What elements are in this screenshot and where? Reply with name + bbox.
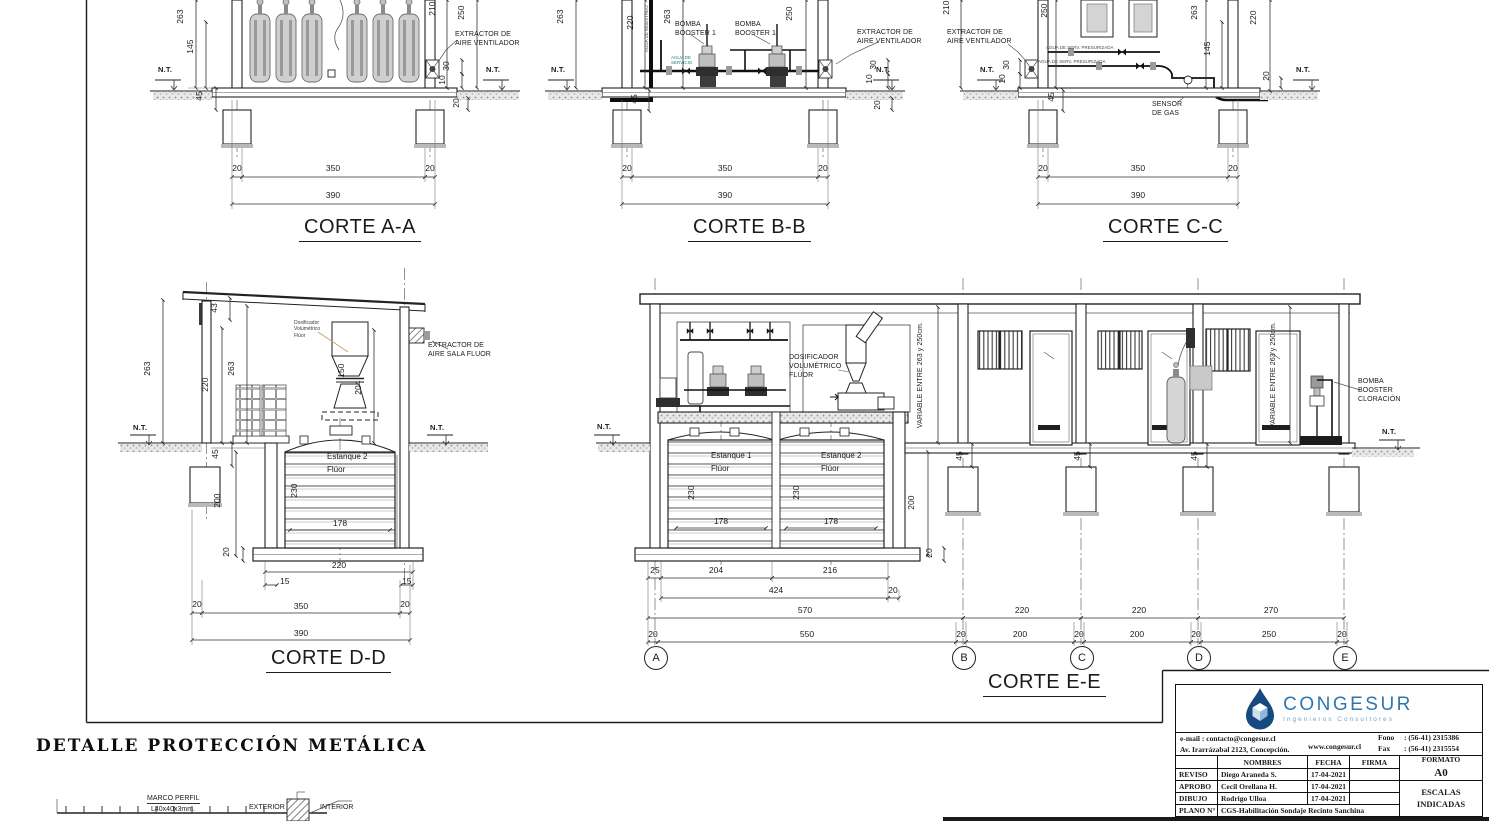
company-logo: CONGESUR Ingenieros Consultores xyxy=(1176,685,1482,732)
dimension-label: 200 xyxy=(1130,630,1144,640)
sheet-edge xyxy=(943,817,1489,821)
dimension-label: 424 xyxy=(769,586,783,596)
dimension-label: 20 xyxy=(925,548,935,557)
grid-bubble-c: C xyxy=(1070,646,1094,670)
col-firma: FIRMA xyxy=(1350,756,1400,769)
nt-label: N.T. xyxy=(1296,66,1310,75)
extractor-aire-label: EXTRACTOR DE AIRE VENTILADOR xyxy=(857,28,922,46)
nt-label: N.T. xyxy=(876,66,890,75)
dimension-label: 45 xyxy=(1073,451,1083,460)
dimension-label: 230 xyxy=(687,486,697,500)
plano-value: CGS-Habilitación Sondaje Recinto Sanchin… xyxy=(1218,805,1400,816)
dimension-label: 45 xyxy=(195,91,205,100)
nt-label: N.T. xyxy=(980,66,994,75)
dimension-label: 220 xyxy=(332,561,346,571)
marco-perfil-label: MARCO PERFIL xyxy=(147,795,200,804)
company-subtitle: Ingenieros Consultores xyxy=(1283,716,1413,723)
nt-label: N.T. xyxy=(158,66,172,75)
corte-cc-title: CORTE C-C xyxy=(1103,216,1228,242)
dimension-label: 150 xyxy=(337,364,347,378)
nt-label: N.T. xyxy=(551,66,565,75)
dimension-label: 550 xyxy=(800,630,814,640)
fax-label: Fax xyxy=(1378,744,1404,755)
dimension-label: 10 xyxy=(438,75,448,84)
table-corner-cell xyxy=(1176,756,1218,769)
nt-label: N.T. xyxy=(430,424,444,433)
extractor-aire-label: EXTRACTOR DE AIRE VENTILADOR xyxy=(455,30,520,48)
dimension-label: 178 xyxy=(824,517,838,527)
company-website: www.congesur.cl xyxy=(1308,741,1378,754)
col-fecha: FECHA xyxy=(1308,756,1350,769)
dosificador-label: DOSIFICADOR VOLUMÉTRICO FLÚOR xyxy=(789,353,841,380)
dimension-label: 20 xyxy=(192,600,201,610)
grid-bubble-a: A xyxy=(644,646,668,670)
dimension-label: 390 xyxy=(1131,191,1145,201)
dimension-label: 25 xyxy=(650,566,659,576)
dimension-label: 10 xyxy=(865,74,875,83)
dimension-label: 20 xyxy=(1262,71,1272,80)
dimension-label: 20 xyxy=(232,164,241,174)
nt-label: N.T. xyxy=(133,424,147,433)
dimension-label: 350 xyxy=(1131,164,1145,174)
row-date: 17-04-2021 xyxy=(1308,769,1350,781)
dimension-label: 30 xyxy=(1002,60,1012,69)
dimension-label: 20 xyxy=(648,630,657,640)
interior-label: INTERIOR xyxy=(320,804,353,811)
drawing-sheet: 263145210250301020452035020390N.T.N.T.EX… xyxy=(0,0,1489,821)
dimension-label: 230 xyxy=(792,486,802,500)
nt-label: N.T. xyxy=(1382,428,1396,437)
dimension-label: 20 xyxy=(956,630,965,640)
dimension-label: 210 xyxy=(428,2,438,16)
estanque-label: Estanque 2 xyxy=(327,452,367,461)
sensor-gas-label: SENSOR DE GAS xyxy=(1152,100,1182,118)
dimension-label: 30 xyxy=(442,61,452,70)
dimension-label: 210 xyxy=(942,1,952,15)
grid-bubble-d: D xyxy=(1187,646,1211,670)
dimension-label: 45 xyxy=(955,451,965,460)
signature-table: NOMBRES FECHA FIRMA FORMATO A0 REVISO Di… xyxy=(1176,755,1482,816)
escalas-value: ESCALAS INDICADAS xyxy=(1417,787,1465,809)
dosificador-label: Dosificador Volumétrico Flúor xyxy=(294,320,320,339)
dimension-label: 20 xyxy=(818,164,827,174)
dimension-label: 220 xyxy=(1015,606,1029,616)
dimension-label: 250 xyxy=(1040,4,1050,18)
marco-perfil-spec: L40x40x3mm. xyxy=(151,806,195,813)
corte-dd-title: CORTE D-D xyxy=(266,647,391,673)
corte-aa-title: CORTE A-A xyxy=(299,216,421,242)
dimension-label: 204 xyxy=(354,381,364,395)
dimension-label: 145 xyxy=(1203,42,1213,56)
agua-servicio-label: AGUA DE SERVICIO xyxy=(671,55,692,65)
detalle-drawing xyxy=(57,792,352,821)
dimension-label: 10 xyxy=(998,74,1008,83)
dimension-label: 390 xyxy=(326,191,340,201)
dimension-label: 350 xyxy=(326,164,340,174)
dimension-label: 45 xyxy=(1190,451,1200,460)
estanque-label: Estanque 2 xyxy=(821,451,861,460)
dimension-label: 250 xyxy=(1262,630,1276,640)
company-email: e-mail : contacto@congesur.cl xyxy=(1180,733,1308,744)
escalas-cell: ESCALAS INDICADAS xyxy=(1400,781,1482,816)
dimension-label: 270 xyxy=(1264,606,1278,616)
nt-label: N.T. xyxy=(486,66,500,75)
dimension-label: 250 xyxy=(457,6,467,20)
title-block: CONGESUR Ingenieros Consultores e-mail :… xyxy=(1175,684,1483,817)
dimension-label: 20 xyxy=(1074,630,1083,640)
dimension-label: 220 xyxy=(1249,11,1259,25)
estanque-label: Estanque 1 xyxy=(711,451,751,460)
dimension-label: 390 xyxy=(294,629,308,639)
dimension-label: 200 xyxy=(907,496,917,510)
bomba-booster-label: BOMBA BOOSTER 1 xyxy=(735,20,776,38)
dimension-label: 350 xyxy=(294,602,308,612)
dimension-label: 250 xyxy=(785,7,795,21)
dimension-label: 20 xyxy=(400,600,409,610)
dimension-label: 263 xyxy=(663,10,673,24)
extractor-aire-label: EXTRACTOR DE AIRE VENTILADOR xyxy=(947,28,1012,46)
company-address: Av. Irarrázabal 2123, Concepción. xyxy=(1180,744,1308,755)
dimension-label: 15 xyxy=(280,577,289,587)
dimension-label: 220 xyxy=(201,378,211,392)
dimension-label: 216 xyxy=(823,566,837,576)
dimension-label: 570 xyxy=(798,606,812,616)
fono-value: : (56-41) 2315386 xyxy=(1404,733,1478,744)
corte-ee-drawing xyxy=(594,278,1420,646)
dimension-label: 20 xyxy=(222,547,232,556)
dimension-label: 263 xyxy=(143,362,153,376)
dimension-label: 45 xyxy=(1047,92,1057,101)
dimension-label: 20 xyxy=(425,164,434,174)
col-nombres: NOMBRES xyxy=(1218,756,1308,769)
dimension-label: 178 xyxy=(714,517,728,527)
dimension-label: 220 xyxy=(626,16,636,30)
contact-row: e-mail : contacto@congesur.cl Av. Irarrá… xyxy=(1176,732,1482,755)
fono-label: Fono xyxy=(1378,733,1404,744)
corte-cc-drawing xyxy=(960,0,1320,209)
row-firma xyxy=(1350,781,1400,793)
dimension-label: 200 xyxy=(213,494,223,508)
company-name: CONGESUR xyxy=(1283,695,1413,714)
plano-label: PLANO N° xyxy=(1176,805,1218,816)
dimension-label: 20 xyxy=(1337,630,1346,640)
row-name: Cecil Orellana H. xyxy=(1218,781,1308,793)
dimension-label: 145 xyxy=(186,40,196,54)
dimension-label: 350 xyxy=(718,164,732,174)
grid-bubble-e: E xyxy=(1333,646,1357,670)
row-label: DIBUJO xyxy=(1176,793,1218,805)
dimension-label: 200 xyxy=(1013,630,1027,640)
pipe-label: AGUA DE SERV. PRESURIZADA xyxy=(1038,59,1106,64)
row-name: Diego Araneda S. xyxy=(1218,769,1308,781)
dimension-label: 263 xyxy=(1190,6,1200,20)
dimension-label: 220 xyxy=(1132,606,1146,616)
water-drop-logo-icon xyxy=(1245,687,1275,731)
row-date: 17-04-2021 xyxy=(1308,781,1350,793)
dimension-label: 390 xyxy=(718,191,732,201)
bomba-booster-label: BOMBA BOOSTER 1 xyxy=(675,20,716,38)
dimension-label: 20 xyxy=(1038,164,1047,174)
corte-bb-drawing xyxy=(545,0,905,209)
estanque-label: Flúor xyxy=(821,464,839,473)
agua-muestreo-label: AGUA DE MUESTREO xyxy=(644,5,649,52)
dimension-label: 20 xyxy=(1228,164,1237,174)
row-firma xyxy=(1350,793,1400,805)
corte-ee-title: CORTE E-E xyxy=(983,671,1106,697)
variable-dim-label: VARIABLE ENTRE 263 y 250cm. xyxy=(916,322,925,428)
formato-label: FORMATO xyxy=(1422,755,1460,765)
dimension-label: 263 xyxy=(227,362,237,376)
dimension-label: 45 xyxy=(630,94,640,103)
row-label: REVISO xyxy=(1176,769,1218,781)
extractor-sala-fluor-label: EXTRACTOR DE AIRE SALA FLUOR xyxy=(428,341,491,359)
dimension-label: 20 xyxy=(888,586,897,596)
fax-value: : (56-41) 2315554 xyxy=(1404,744,1478,755)
detalle-title: DETALLE PROTECCIÓN METÁLICA xyxy=(36,736,427,756)
variable-dim-label: VARIABLE ENTRE 263 y 250cm. xyxy=(1269,322,1278,428)
corte-bb-title: CORTE B-B xyxy=(688,216,811,242)
estanque-label: Flúor xyxy=(711,464,729,473)
dimension-label: 15 xyxy=(402,577,411,587)
dimension-label: 20 xyxy=(452,98,462,107)
dimension-label: 230 xyxy=(290,484,300,498)
dimension-label: 204 xyxy=(709,566,723,576)
dimension-label: 20 xyxy=(873,100,883,109)
pipe-label: AGUA DE SERV. PRESURIZADA xyxy=(1046,45,1114,50)
formato-cell: FORMATO A0 xyxy=(1400,756,1482,781)
grid-bubble-b: B xyxy=(952,646,976,670)
estanque-label: Flúor xyxy=(327,465,345,474)
formato-value: A0 xyxy=(1434,766,1447,780)
dimension-label: 20 xyxy=(1191,630,1200,640)
row-name: Rodrigo Ulloa xyxy=(1218,793,1308,805)
bomba-cloracion-label: BOMBA BOOSTER CLORACIÓN xyxy=(1358,377,1401,404)
dimension-label: 20 xyxy=(622,164,631,174)
row-date: 17-04-2021 xyxy=(1308,793,1350,805)
row-label: APROBO xyxy=(1176,781,1218,793)
nt-label: N.T. xyxy=(597,423,611,432)
dimension-label: 45 xyxy=(211,449,221,458)
exterior-label: EXTERIOR xyxy=(249,804,285,811)
dimension-label: 263 xyxy=(556,10,566,24)
row-firma xyxy=(1350,769,1400,781)
dimension-label: 263 xyxy=(176,10,186,24)
dimension-label: 43 xyxy=(210,303,220,312)
dimension-label: 178 xyxy=(333,519,347,529)
